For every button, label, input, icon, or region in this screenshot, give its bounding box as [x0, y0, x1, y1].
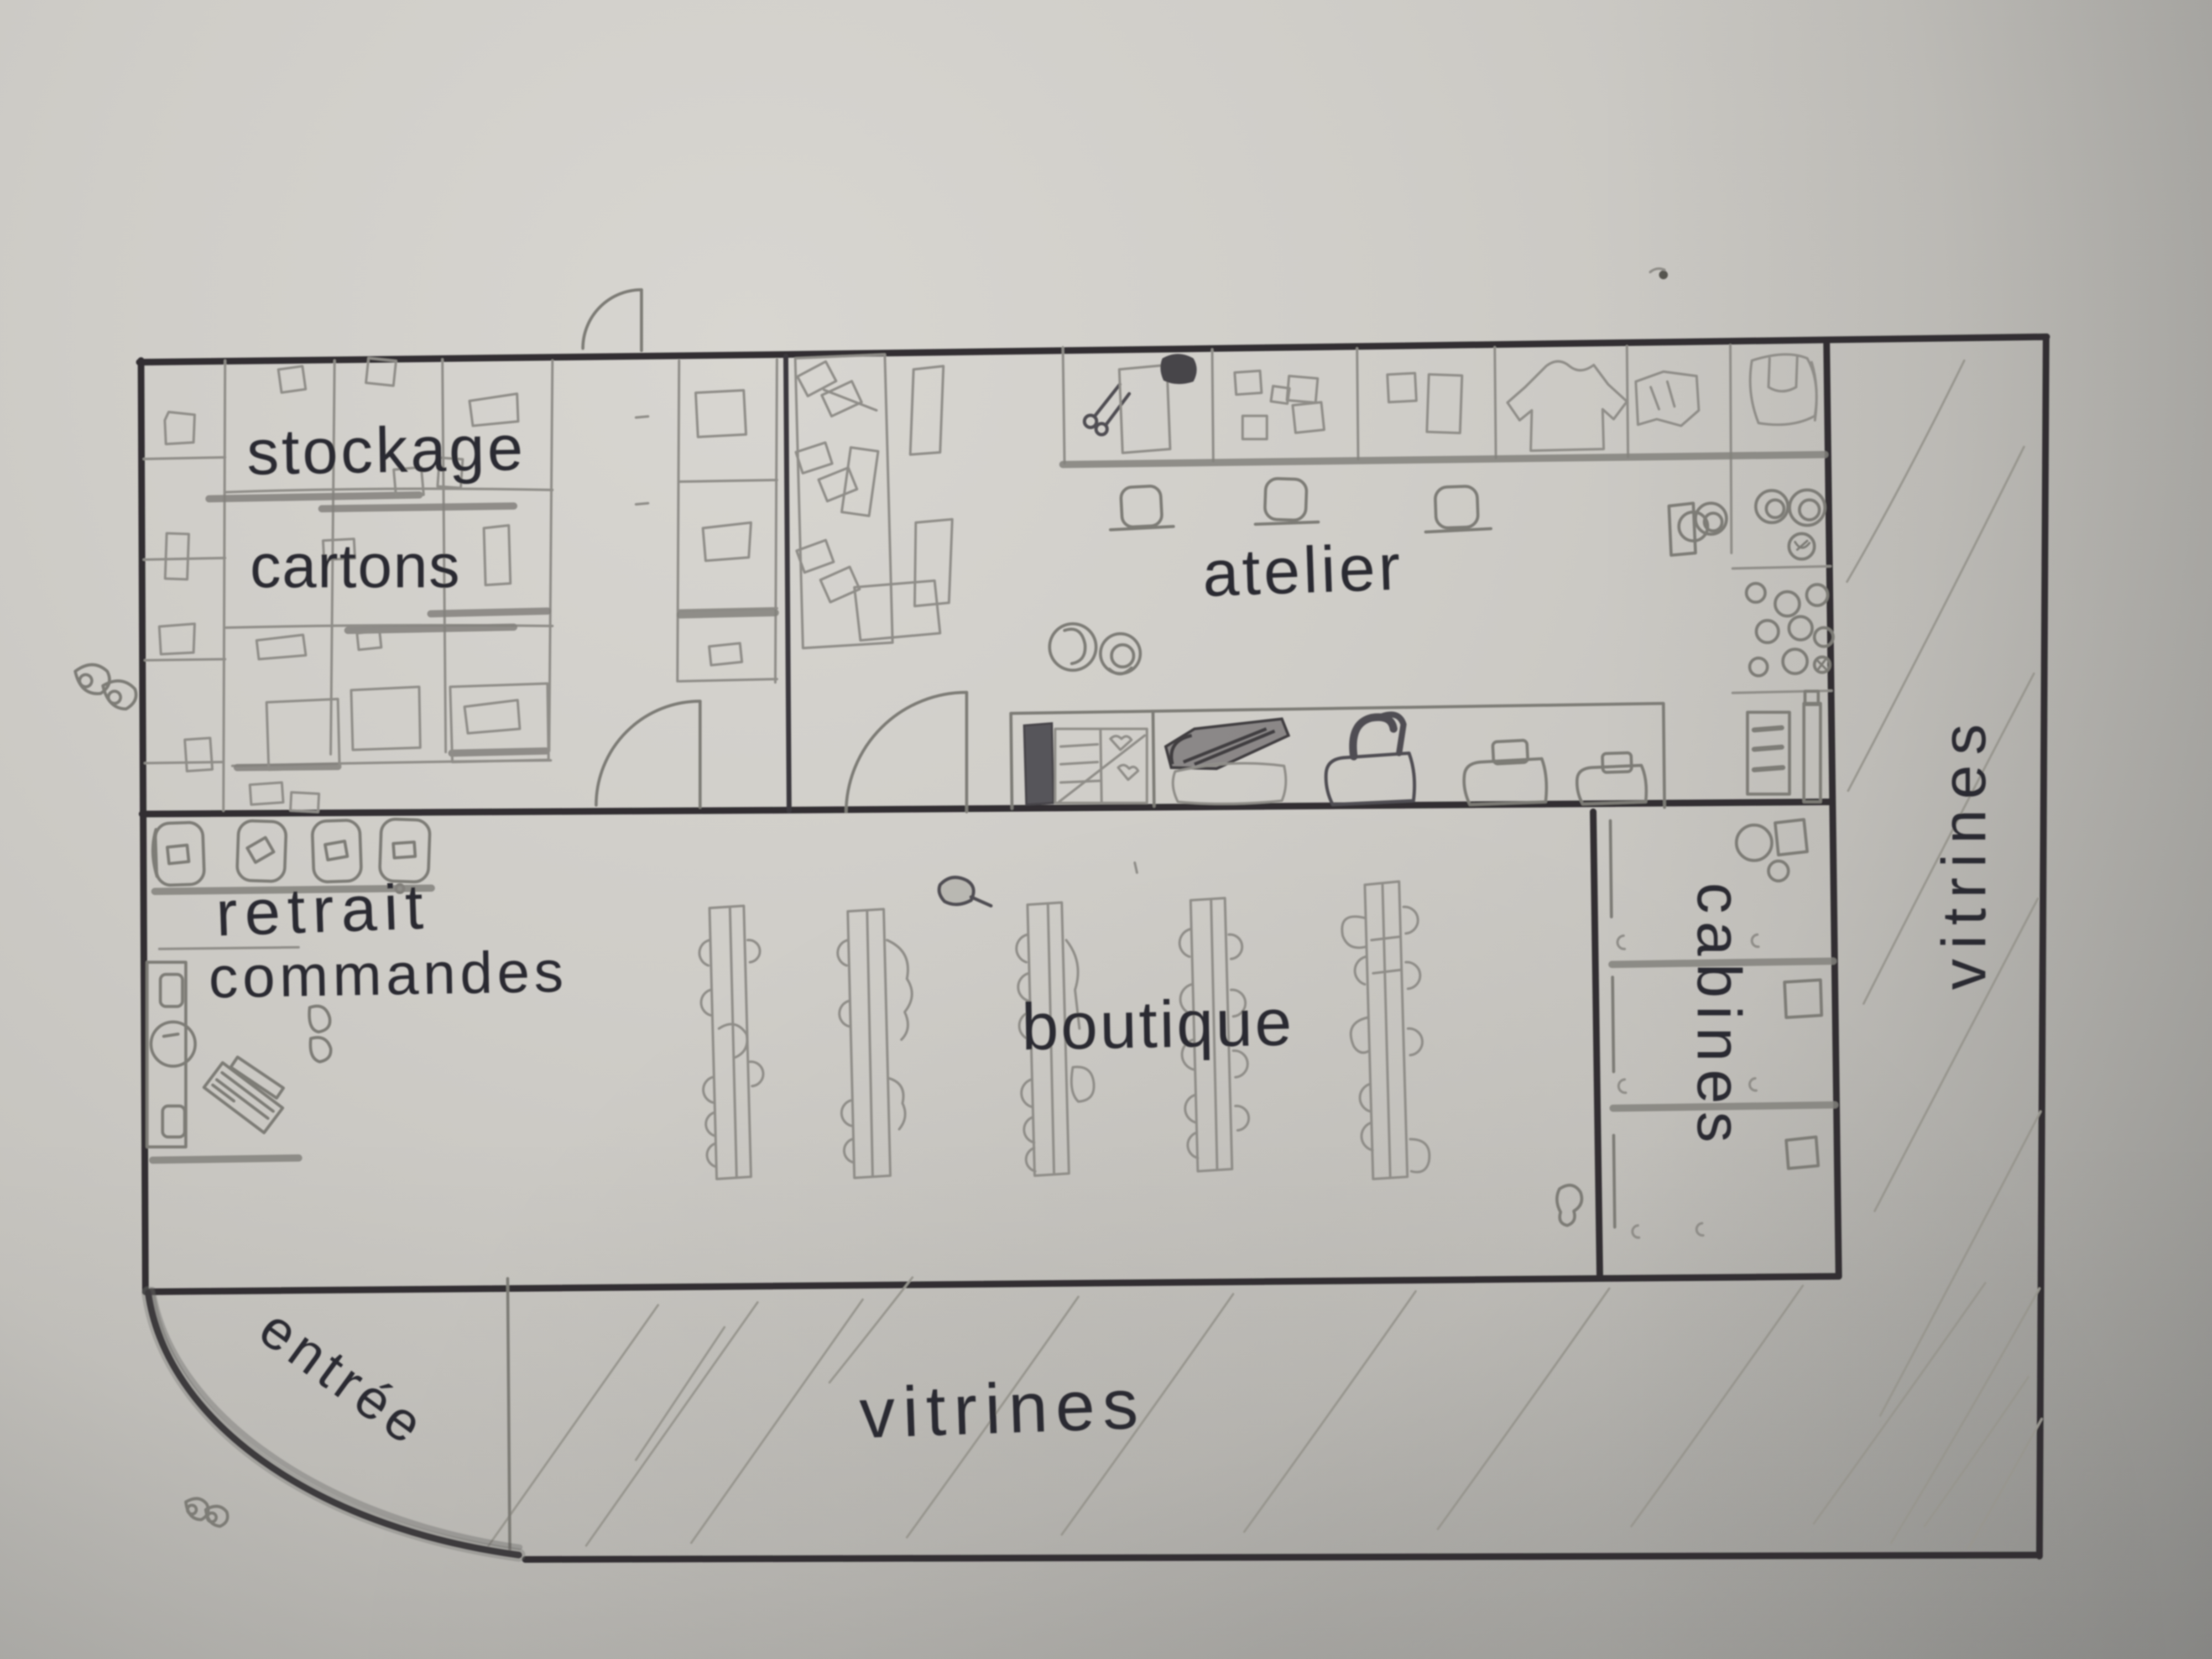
svg-text:commandes: commandes — [208, 939, 568, 1010]
svg-text:vitrines: vitrines — [858, 1364, 1147, 1453]
svg-text:stockage: stockage — [246, 411, 526, 488]
svg-text:vitrines: vitrines — [1929, 714, 1999, 990]
svg-text:retrait: retrait — [215, 870, 431, 950]
svg-text:boutique: boutique — [1021, 985, 1295, 1064]
svg-text:cartons: cartons — [250, 531, 461, 601]
svg-text:atelier: atelier — [1201, 530, 1405, 611]
svg-text:cabines: cabines — [1684, 883, 1754, 1150]
